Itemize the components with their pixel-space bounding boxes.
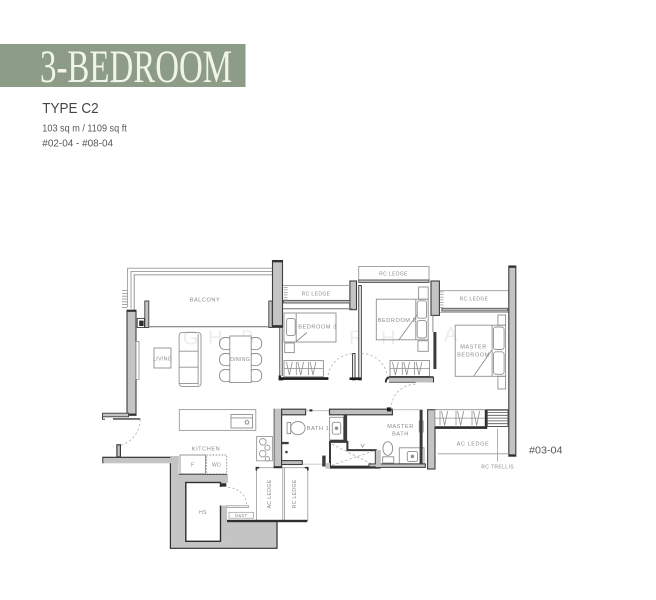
svg-text:LIVING: LIVING: [153, 357, 172, 363]
svg-text:R: R: [349, 328, 365, 350]
svg-text:BATH: BATH: [392, 432, 409, 438]
svg-text:#03-04: #03-04: [529, 446, 563, 457]
svg-text:H: H: [381, 328, 397, 350]
svg-text:AC LEDGE: AC LEDGE: [457, 442, 490, 448]
svg-text:BEDROOM 3: BEDROOM 3: [298, 325, 337, 331]
svg-text:RC LEDGE: RC LEDGE: [379, 272, 408, 278]
svg-text:BATH 1: BATH 1: [307, 426, 329, 432]
svg-text:A: A: [444, 324, 459, 346]
svg-text:AC LEDGE: AC LEDGE: [267, 479, 273, 508]
svg-text:F: F: [191, 463, 194, 469]
svg-text:RC TRELLIS: RC TRELLIS: [481, 465, 514, 471]
svg-text:MASTER: MASTER: [460, 345, 487, 351]
svg-text:#02-04 - #08-04: #02-04 - #08-04: [42, 139, 113, 150]
svg-text:DINING: DINING: [230, 357, 250, 363]
svg-text:WD: WD: [212, 463, 221, 469]
svg-text:RC LEDGE: RC LEDGE: [292, 479, 298, 508]
svg-text:RC LEDGE: RC LEDGE: [302, 292, 331, 298]
svg-text:3-BEDROOM: 3-BEDROOM: [40, 42, 232, 93]
svg-text:BEDROOM: BEDROOM: [457, 353, 490, 359]
svg-text:HS: HS: [199, 510, 207, 516]
svg-text:TYPE C2: TYPE C2: [42, 101, 98, 117]
svg-text:RC LEDGE: RC LEDGE: [460, 296, 489, 302]
svg-text:KITCHEN: KITCHEN: [192, 447, 220, 453]
svg-text:BALCONY: BALCONY: [190, 298, 221, 304]
svg-text:103 sq m / 1109 sq ft: 103 sq m / 1109 sq ft: [42, 124, 127, 135]
svg-text:D&ST: D&ST: [235, 513, 247, 518]
svg-text:BEDROOM 2: BEDROOM 2: [378, 318, 417, 324]
svg-text:MASTER: MASTER: [387, 424, 414, 430]
